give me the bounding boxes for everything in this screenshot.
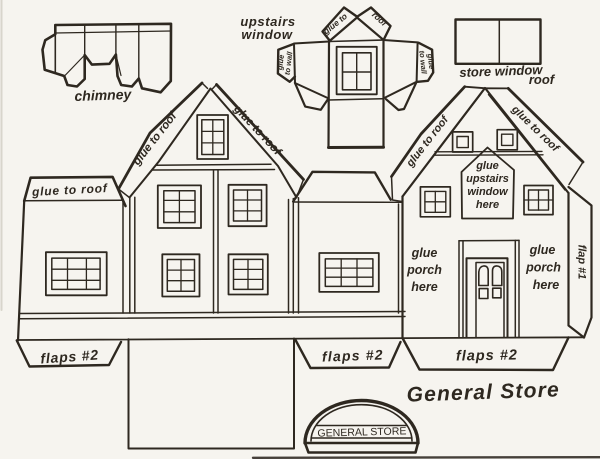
svg-text:GENERAL STORE: GENERAL STORE [317, 425, 406, 439]
svg-text:here: here [533, 278, 559, 292]
svg-text:window: window [241, 27, 293, 42]
svg-text:flaps #2: flaps #2 [322, 346, 384, 364]
svg-text:here: here [476, 199, 499, 211]
svg-text:glue: glue [475, 160, 499, 172]
svg-text:window: window [467, 186, 509, 198]
svg-text:chimney: chimney [74, 86, 133, 104]
svg-text:flap #1: flap #1 [576, 245, 588, 280]
svg-text:roof: roof [529, 72, 556, 87]
svg-text:glue: glue [529, 243, 556, 257]
svg-text:glue: glue [411, 246, 438, 260]
svg-text:porch: porch [406, 263, 442, 277]
svg-text:here: here [411, 280, 437, 294]
svg-text:flaps #2: flaps #2 [456, 347, 518, 364]
svg-text:upstairs: upstairs [466, 173, 509, 185]
svg-text:porch: porch [525, 261, 561, 275]
